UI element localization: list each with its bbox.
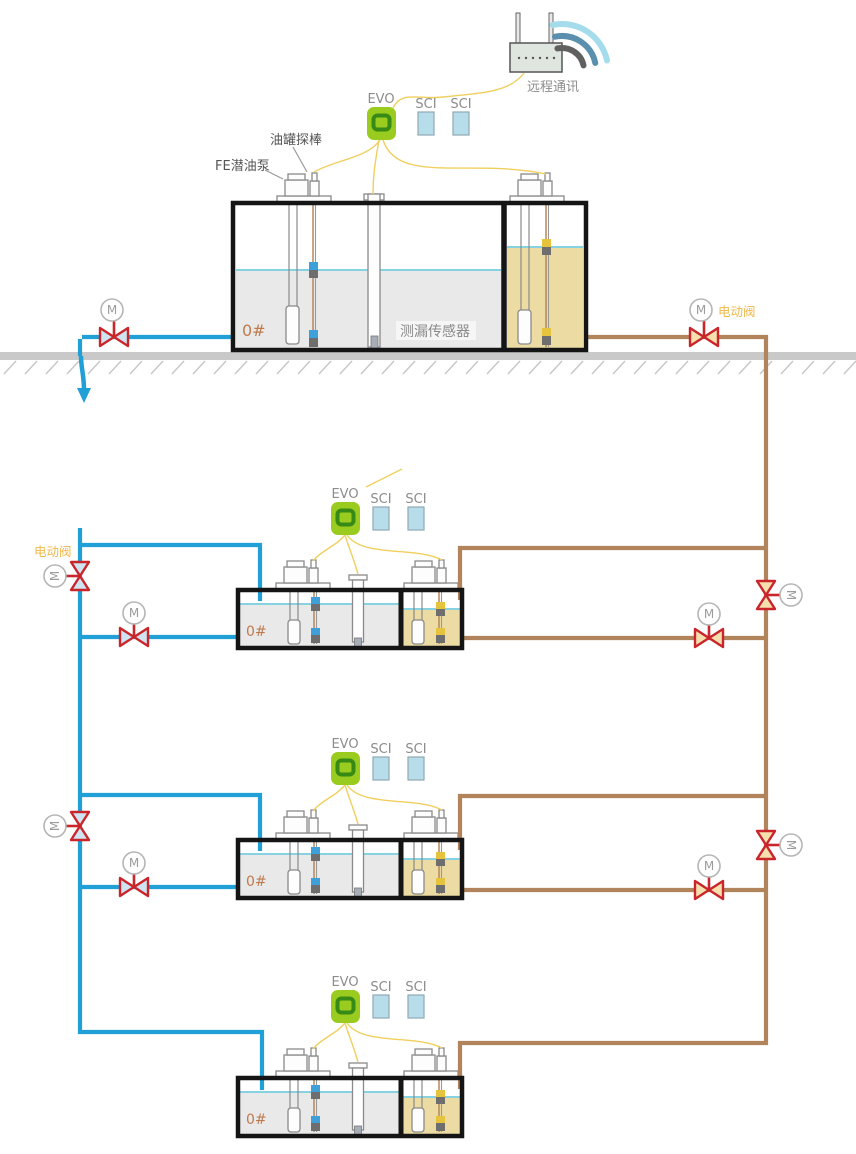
svg-text:EVO: EVO xyxy=(331,487,358,502)
tank-row3-body xyxy=(238,810,462,898)
pump-manhole-right xyxy=(510,173,564,203)
ground-line xyxy=(0,352,856,375)
svg-text:SCI: SCI xyxy=(405,492,426,507)
electric-valve-label-left: 电动阀 xyxy=(34,544,72,559)
electric-valve-label-right: 电动阀 xyxy=(718,304,756,319)
evo-controller-top: EVO SCI SCI xyxy=(367,92,472,140)
sci-module-icon xyxy=(408,995,424,1018)
sci-module-icon xyxy=(408,507,424,530)
svg-text:SCI: SCI xyxy=(450,97,471,112)
flow-arrow xyxy=(77,388,91,403)
evo-controller-row2: EVO SCI SCI xyxy=(331,487,427,535)
sci-module-icon xyxy=(453,112,469,135)
return-pipe-brown xyxy=(460,337,766,1089)
sci-module-icon xyxy=(418,112,434,135)
svg-text:EVO: EVO xyxy=(331,975,358,990)
svg-text:SCI: SCI xyxy=(405,742,426,757)
svg-text:M: M xyxy=(48,571,62,581)
fuel-grade-label: 0# xyxy=(246,624,267,640)
svg-text:M: M xyxy=(129,606,139,620)
evo-device-icon xyxy=(331,990,360,1023)
svg-text:EVO: EVO xyxy=(367,92,394,107)
svg-text:SCI: SCI xyxy=(405,980,426,995)
svg-text:M: M xyxy=(784,840,798,850)
sci-module-icon xyxy=(373,507,389,530)
svg-text:SCI: SCI xyxy=(370,492,391,507)
supply-pipe-blue xyxy=(77,337,262,1090)
svg-text:M: M xyxy=(704,607,714,621)
svg-text:SCI: SCI xyxy=(415,97,436,112)
fe-pump-label: FE潜油泵 xyxy=(215,159,270,174)
svg-text:M: M xyxy=(129,856,139,870)
tank-row4-body xyxy=(238,1048,462,1136)
sci-module-icon xyxy=(408,757,424,780)
evo-device-icon xyxy=(331,752,360,785)
svg-text:测漏传感器: 测漏传感器 xyxy=(400,323,470,340)
evo-controller-row4: EVO SCI SCI xyxy=(331,975,427,1023)
remote-comm-label: 远程通讯 xyxy=(527,80,579,95)
fuel-grade-label: 0# xyxy=(246,874,267,890)
tank-probe-label: 油罐探棒 xyxy=(270,133,322,148)
evo-device-icon xyxy=(367,107,396,140)
svg-text:EVO: EVO xyxy=(331,737,358,752)
svg-text:M: M xyxy=(784,590,798,600)
evo-controller-row3: EVO SCI SCI xyxy=(331,737,427,785)
pump-manhole-left xyxy=(277,173,331,203)
svg-text:M: M xyxy=(48,821,62,831)
leak-sensor-label: 测漏传感器 xyxy=(396,321,476,340)
fuel-system-diagram: M M M M M M M M xyxy=(0,0,856,1154)
svg-text:SCI: SCI xyxy=(370,742,391,757)
svg-text:SCI: SCI xyxy=(370,980,391,995)
svg-text:M: M xyxy=(107,303,117,317)
sci-module-icon xyxy=(373,757,389,780)
evo-device-icon xyxy=(331,502,360,535)
tank-row2-body xyxy=(238,560,462,648)
fuel-grade-label: 0# xyxy=(242,321,266,340)
fuel-grade-label: 0# xyxy=(246,1112,267,1128)
sci-module-icon xyxy=(373,995,389,1018)
svg-text:M: M xyxy=(704,859,714,873)
svg-text:M: M xyxy=(696,303,706,317)
